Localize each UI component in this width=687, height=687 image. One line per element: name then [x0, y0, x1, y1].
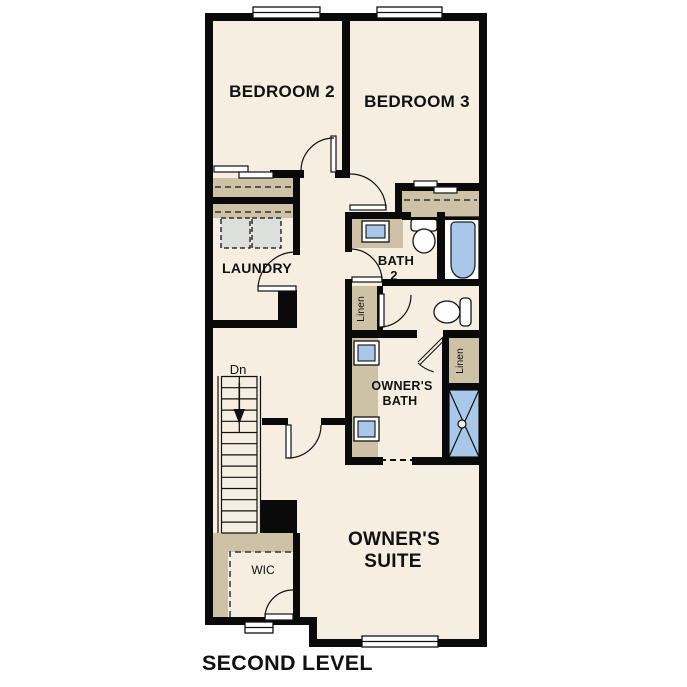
wall-stair-chunk	[260, 500, 297, 533]
wall-linen-shower-west	[442, 338, 449, 457]
linen-lower-label: Linen	[454, 348, 466, 374]
bathtub	[451, 222, 475, 278]
wall-left	[205, 13, 213, 625]
owners-sink1	[358, 345, 375, 361]
wic-shelf-left	[213, 550, 228, 617]
linen-upper-label: Linen	[355, 296, 367, 322]
plan-caption: SECOND LEVEL	[202, 651, 373, 675]
owners-sink2	[358, 421, 375, 437]
bath2-label-line1: BATH	[378, 253, 414, 268]
wall-owners-bath-south-b	[412, 457, 479, 465]
washer	[221, 218, 250, 248]
bath2-toilet-bowl	[413, 229, 435, 253]
staircase	[218, 376, 262, 533]
owners-bath-label-line1: OWNER'S	[371, 379, 432, 393]
floor-plan-drawing: BEDROOM 2 BEDROOM 3 LAUNDRY BATH 2 Linen…	[0, 0, 687, 687]
bedroom3-label: BEDROOM 3	[364, 92, 470, 111]
window-owners-suite	[362, 636, 438, 647]
wall-top	[205, 13, 487, 21]
wic-shelf-top	[213, 533, 293, 552]
owners-suite-label-line2: SUITE	[364, 551, 421, 572]
floor-plan-page: BEDROOM 2 BEDROOM 3 LAUNDRY BATH 2 Linen…	[0, 0, 687, 687]
stairs-dn-label: Dn	[230, 362, 247, 377]
wc-toilet-bowl	[434, 301, 460, 323]
wall-laundry-south	[205, 320, 297, 328]
wall-hall-south-b	[321, 418, 350, 425]
wall-hall-east-b	[345, 279, 352, 465]
wic-label: WIC	[251, 563, 275, 577]
window-bedroom2	[253, 7, 320, 18]
wall-wic-east	[293, 533, 300, 617]
dryer	[252, 218, 281, 248]
laundry-label: LAUNDRY	[222, 260, 292, 276]
wall-laundry-east	[293, 178, 300, 255]
wall-wc-south-b	[443, 330, 479, 338]
window-wic	[245, 622, 273, 633]
wall-wc-south-a	[345, 330, 417, 338]
wall-owners-bath-south-a	[345, 457, 383, 465]
wall-linen-lower-south	[442, 383, 479, 390]
bath2-sink	[366, 225, 385, 238]
wc-toilet-tank	[460, 298, 471, 326]
bath2-label-line2: 2	[390, 268, 398, 283]
wall-hall-south-a	[262, 418, 288, 425]
laundry-shelf	[213, 203, 293, 218]
wall-tub-west	[437, 212, 445, 286]
bedroom2-label: BEDROOM 2	[229, 82, 335, 101]
wall-hall-east-a	[345, 219, 352, 252]
owners-bath-label-line2: BATH	[383, 394, 418, 408]
owners-suite-label-line1: OWNER'S	[348, 529, 440, 550]
wall-right	[479, 13, 487, 647]
shower-drain	[458, 420, 466, 428]
wall-bedroom3-stub	[395, 183, 402, 216]
wall-bedroom2-south-a	[270, 170, 304, 178]
wall-closet-laundry	[213, 197, 297, 204]
wall-bath2-north	[345, 212, 405, 219]
wall-bedroom-divider	[342, 21, 350, 178]
window-bedroom3	[377, 7, 442, 18]
